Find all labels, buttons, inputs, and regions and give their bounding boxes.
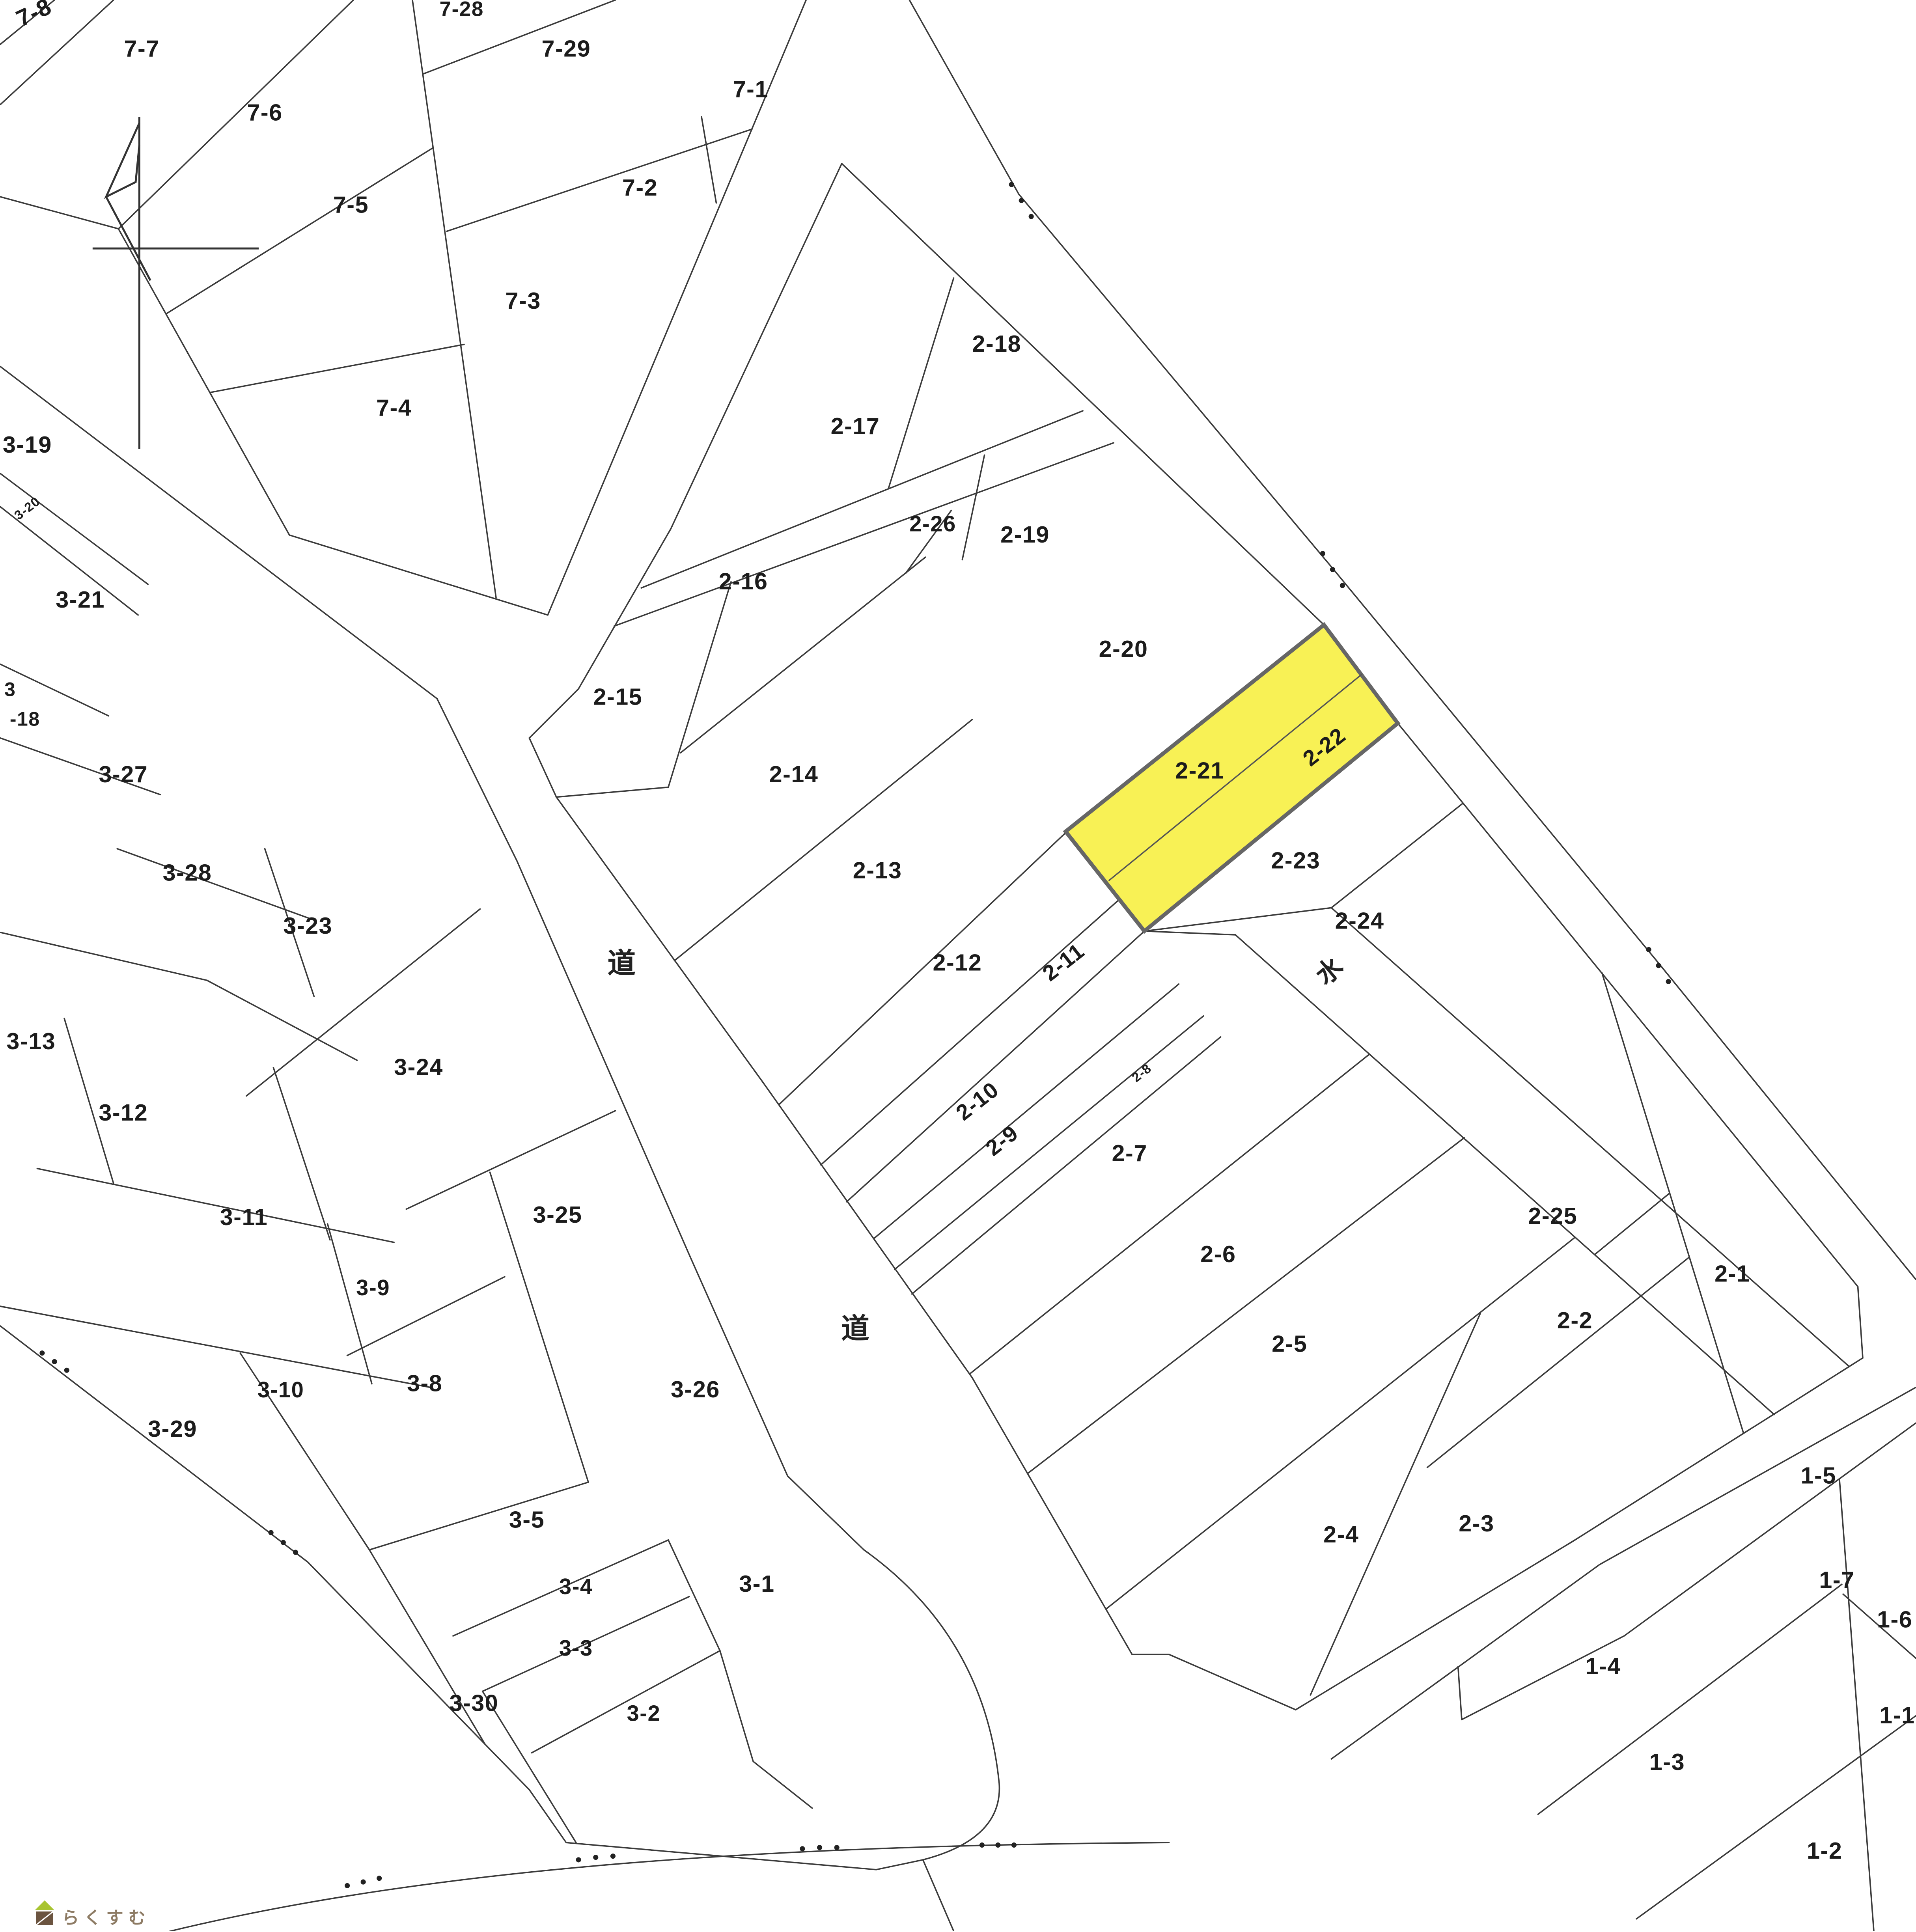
parcel-label-1-1: 1-1: [1879, 1702, 1915, 1729]
parcel-label-2-6: 2-6: [1200, 1241, 1236, 1267]
cadastral-map-page: 7-87-77-67-57-47-287-297-17-27-32-182-17…: [0, 0, 1916, 1931]
parcel-label-1-4: 1-4: [1586, 1653, 1621, 1679]
survey-dot: [52, 1359, 57, 1364]
parcel-label-2-4: 2-4: [1323, 1521, 1359, 1548]
parcel-label-7-29: 7-29: [541, 35, 591, 62]
parcel-label-3-5: 3-5: [509, 1507, 545, 1533]
parcel-label-2-24: 2-24: [1335, 907, 1384, 934]
survey-dot: [593, 1855, 598, 1860]
parcel-label-2-19: 2-19: [1000, 521, 1050, 548]
parcel-label-1-5: 1-5: [1801, 1462, 1836, 1488]
parcel-label-3-18b: -18: [10, 708, 40, 730]
parcel-label-1-7: 1-7: [1819, 1566, 1854, 1593]
cadastral-map: 7-87-77-67-57-47-287-297-17-27-32-182-17…: [0, 0, 1916, 1931]
parcel-label-2-15: 2-15: [593, 684, 642, 710]
survey-dot: [817, 1845, 822, 1850]
parcel-label-3-1: 3-1: [739, 1570, 774, 1597]
road-label: 道: [841, 1313, 869, 1345]
survey-dot: [1646, 947, 1651, 952]
survey-dot: [610, 1854, 616, 1859]
parcel-label-2-1: 2-1: [1715, 1261, 1750, 1287]
parcel-label-7-3: 7-3: [506, 287, 541, 314]
parcel-label-3-12: 3-12: [99, 1099, 148, 1126]
parcel-label-3-9: 3-9: [356, 1275, 390, 1300]
survey-dot: [1019, 198, 1024, 203]
parcel-label-3-3: 3-3: [559, 1635, 593, 1660]
survey-dot: [1009, 182, 1014, 187]
survey-dot: [576, 1857, 581, 1862]
survey-dot: [39, 1350, 45, 1356]
survey-dot: [1330, 567, 1335, 572]
survey-dot: [979, 1842, 985, 1848]
parcel-label-3-24: 3-24: [394, 1054, 443, 1080]
survey-dot: [1340, 583, 1345, 588]
parcel-label-2-26: 2-26: [909, 511, 956, 536]
parcel-label-3-19: 3-19: [3, 431, 52, 458]
parcel-label-7-6: 7-6: [247, 99, 282, 126]
survey-dot: [361, 1880, 366, 1885]
parcel-label-7-5: 7-5: [333, 192, 369, 218]
parcel-label-2-21: 2-21: [1175, 757, 1224, 784]
parcel-label-3-2: 3-2: [627, 1701, 661, 1725]
parcel-label-2-23: 2-23: [1271, 847, 1320, 873]
parcel-label-2-16: 2-16: [719, 568, 768, 594]
parcel-label-3-13: 3-13: [6, 1028, 56, 1054]
parcel-label-7-28: 7-28: [440, 0, 484, 21]
parcel-label-3-26: 3-26: [671, 1376, 720, 1402]
parcel-label-3-30: 3-30: [449, 1690, 498, 1716]
survey-dot: [64, 1368, 69, 1373]
survey-dot: [269, 1530, 274, 1535]
survey-dot: [800, 1846, 805, 1851]
parcel-label-3-18a: 3: [4, 679, 16, 701]
parcel-label-2-20: 2-20: [1099, 636, 1148, 662]
parcel-label-7-4: 7-4: [376, 394, 412, 421]
parcel-label-7-2: 7-2: [622, 174, 658, 201]
parcel-label-2-13: 2-13: [853, 857, 902, 883]
survey-dot: [293, 1550, 298, 1555]
parcel-label-2-2: 2-2: [1557, 1307, 1593, 1333]
survey-dot: [1011, 1842, 1017, 1848]
parcel-label-3-4: 3-4: [559, 1574, 593, 1599]
survey-dot: [1666, 979, 1671, 984]
parcel-label-1-2: 1-2: [1807, 1837, 1842, 1864]
parcel-label-3-28: 3-28: [163, 860, 212, 886]
road-label: 道: [607, 948, 636, 979]
watermark-text: らくすむ: [62, 1908, 151, 1928]
survey-dot: [1320, 551, 1325, 556]
survey-dot: [834, 1845, 840, 1850]
parcel-label-3-11: 3-11: [220, 1204, 268, 1230]
parcel-label-2-14: 2-14: [769, 761, 819, 787]
parcel-label-7-7: 7-7: [124, 35, 159, 62]
parcel-label-3-25: 3-25: [533, 1201, 582, 1228]
parcel-label-3-23: 3-23: [283, 912, 332, 939]
survey-dot: [1656, 963, 1661, 968]
parcel-label-3-29: 3-29: [148, 1415, 197, 1442]
parcel-label-7-1: 7-1: [733, 76, 769, 102]
parcel-label-2-12: 2-12: [933, 949, 982, 975]
parcel-label-2-3: 2-3: [1459, 1510, 1494, 1537]
parcel-label-1-6: 1-6: [1877, 1606, 1912, 1632]
parcel-label-2-18: 2-18: [972, 330, 1021, 357]
survey-dot: [345, 1883, 350, 1888]
parcel-label-3-10: 3-10: [257, 1377, 304, 1402]
parcel-label-3-8: 3-8: [407, 1370, 442, 1396]
parcel-label-3-21: 3-21: [56, 586, 105, 613]
parcel-label-2-7: 2-7: [1112, 1140, 1147, 1166]
survey-dot: [377, 1876, 382, 1881]
survey-dot: [281, 1540, 286, 1545]
survey-dot: [995, 1842, 1000, 1848]
parcel-label-2-17: 2-17: [831, 413, 880, 439]
survey-dot: [1029, 214, 1034, 219]
parcel-label-1-3: 1-3: [1649, 1749, 1685, 1775]
parcel-label-3-27: 3-27: [99, 761, 148, 787]
parcel-label-2-5: 2-5: [1272, 1331, 1307, 1357]
parcel-label-2-25: 2-25: [1528, 1203, 1577, 1229]
